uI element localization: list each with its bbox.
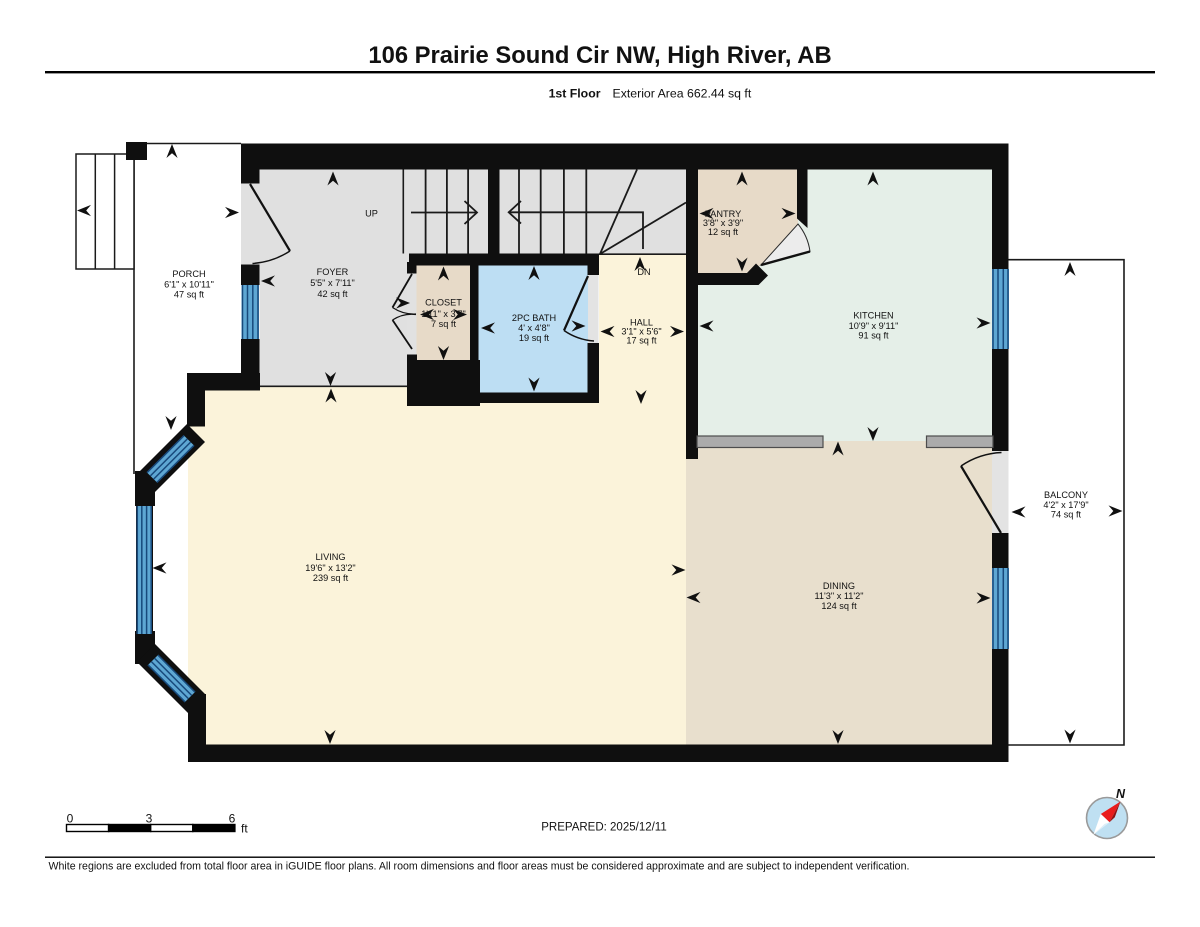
svg-text:Exterior Area 662.44 sq ft: Exterior Area 662.44 sq ft [613,87,752,101]
svg-text:1st Floor: 1st Floor [549,87,601,101]
svg-text:1'11" x 3'7": 1'11" x 3'7" [421,309,466,319]
svg-text:91 sq ft: 91 sq ft [858,331,889,341]
svg-text:124 sq ft: 124 sq ft [821,601,857,611]
svg-text:BALCONY: BALCONY [1044,490,1088,500]
svg-text:4'2" x 17'9": 4'2" x 17'9" [1043,500,1088,510]
svg-text:19 sq ft: 19 sq ft [519,333,550,343]
svg-text:42 sq ft: 42 sq ft [317,289,348,299]
svg-text:74 sq ft: 74 sq ft [1051,510,1082,520]
svg-text:5'5" x 7'11": 5'5" x 7'11" [310,278,355,288]
svg-text:LIVING: LIVING [315,552,345,562]
svg-text:19'6" x 13'2": 19'6" x 13'2" [305,563,355,573]
svg-text:47 sq ft: 47 sq ft [174,290,205,300]
svg-text:106 Prairie Sound Cir NW, High: 106 Prairie Sound Cir NW, High River, AB [368,42,831,69]
svg-text:UP: UP [365,209,378,219]
svg-text:KITCHEN: KITCHEN [853,310,893,320]
svg-text:239 sq ft: 239 sq ft [313,573,349,583]
svg-text:11'3" x 11'2": 11'3" x 11'2" [814,591,863,601]
svg-text:10'9" x 9'11": 10'9" x 9'11" [849,321,899,331]
svg-text:ft: ft [241,822,248,836]
svg-text:7 sq ft: 7 sq ft [431,319,456,329]
svg-text:White regions are excluded fro: White regions are excluded from total fl… [49,861,910,873]
svg-text:DINING: DINING [823,581,855,591]
svg-text:2PC BATH: 2PC BATH [512,313,556,323]
svg-text:0: 0 [67,812,74,826]
svg-text:FOYER: FOYER [317,267,349,277]
svg-text:17 sq ft: 17 sq ft [626,336,657,346]
svg-text:4' x 4'8": 4' x 4'8" [518,323,550,333]
svg-text:DN: DN [637,267,650,277]
svg-text:3: 3 [146,812,153,826]
svg-text:12 sq ft: 12 sq ft [708,227,739,237]
svg-text:N: N [1116,787,1126,801]
svg-text:CLOSET: CLOSET [425,297,462,307]
svg-text:PREPARED: 2025/12/11: PREPARED: 2025/12/11 [541,822,667,834]
svg-text:PORCH: PORCH [172,269,205,279]
svg-text:6: 6 [229,812,236,826]
svg-text:6'1" x 10'11": 6'1" x 10'11" [164,280,214,290]
